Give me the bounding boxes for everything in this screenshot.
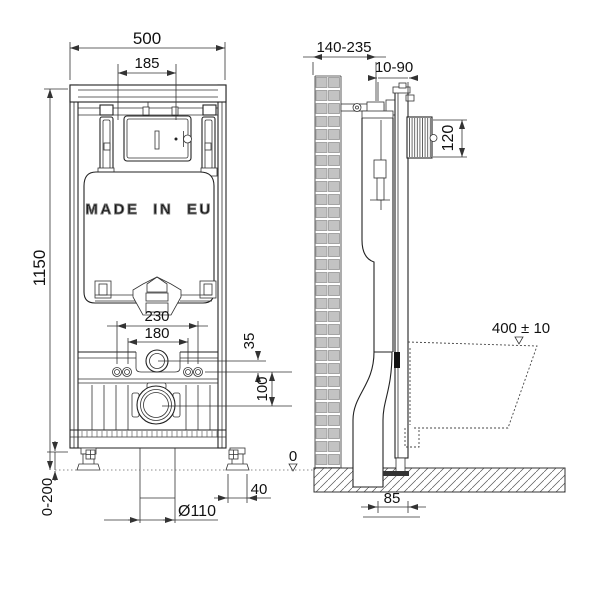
technical-drawing-svg: MADE IN EU [0, 0, 600, 600]
drain-stub [140, 448, 175, 523]
floor-slab [314, 468, 565, 492]
dim-plate-width: 185 [134, 55, 159, 72]
brick-wall [315, 76, 341, 468]
toilet-bowl-outline [405, 342, 537, 447]
dim-bolts-outer: 230 [144, 308, 169, 325]
dim-plate-height: 120 [440, 125, 457, 152]
dim-bolts-to-drain: 100 [254, 376, 271, 401]
plate-clamp [184, 135, 192, 143]
cistern-side [362, 111, 393, 352]
dim-bowl-height: 400 ± 10 [492, 320, 550, 337]
installation-frame-drawing: MADE IN EU [0, 0, 600, 600]
dim-finished-wall: 10-90 [375, 59, 413, 76]
made-in-eu-text: MADE IN EU [85, 201, 212, 218]
front-view: MADE IN EU [70, 85, 249, 523]
flush-plate-box-front [124, 116, 192, 161]
bowl-mount-bolt [394, 352, 400, 368]
dim-overall-width: 500 [133, 29, 161, 48]
adjustable-feet [77, 448, 249, 470]
plate-dot [175, 138, 178, 141]
drain-outlet [132, 383, 180, 424]
foot-bolts [86, 450, 238, 459]
dim-depth-range: 140-235 [316, 39, 371, 56]
drain-elbow [353, 352, 392, 487]
dim-bolts-inner: 180 [144, 325, 169, 342]
cistern-front: MADE IN EU [84, 172, 216, 315]
flush-plate-box-side [407, 117, 437, 158]
foot-base-plate [383, 471, 409, 476]
datum-zero: 0 [289, 448, 297, 465]
dim-overall-height: 1150 [30, 250, 49, 287]
bowl-height-triangle [515, 337, 523, 344]
mounting-zone [70, 350, 226, 448]
dim-foot-width: 40 [251, 481, 268, 498]
dim-flush-to-bolts: 35 [241, 333, 258, 350]
dim-drain-offset: 85 [384, 490, 401, 507]
dim-drain-diameter: Ø110 [178, 503, 216, 520]
dim-leg-range: 0-200 [39, 478, 56, 516]
